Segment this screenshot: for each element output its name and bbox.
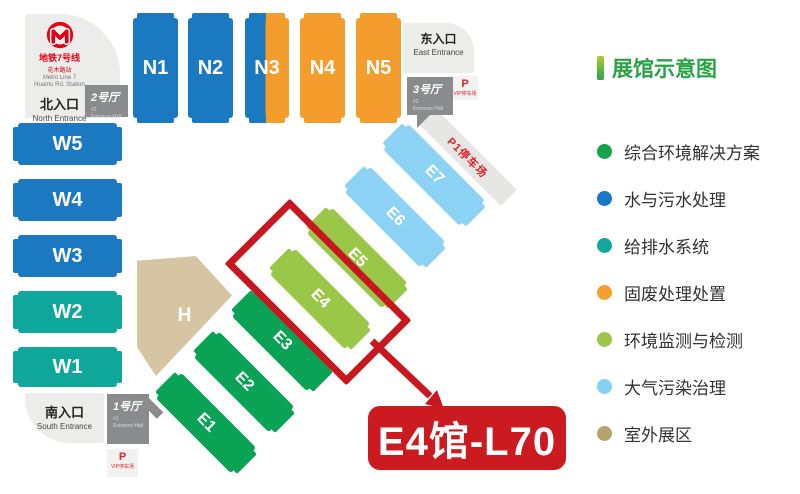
entrance-hall-2-label-en: Entrance Hall <box>91 114 128 120</box>
hall-n5-label: N5 <box>366 57 392 80</box>
entrance-hall-2-title: 2号厅 <box>91 89 128 105</box>
hall-w1: W1 <box>18 347 117 387</box>
hall-n1-label: N1 <box>143 57 169 80</box>
hall-n4-label: N4 <box>310 57 336 80</box>
legend-item-outdoor-area: 室外展区 <box>597 424 797 442</box>
hall-e2-label: E2 <box>231 369 258 396</box>
east-entrance-label: 东入口 <box>403 30 474 47</box>
entrance-hall-3-number: #3 <box>413 99 453 105</box>
e4-booth-callout-text: E4馆-L70 <box>378 409 556 467</box>
hall-w2-label: W2 <box>53 301 83 324</box>
hall-w5-label: W5 <box>53 133 83 156</box>
metro-line-name-en: Metro Line 7 <box>25 75 94 81</box>
legend-title-row: 展馆示意图 <box>597 55 797 81</box>
legend-item-water-supply-drainage: 给排水系统 <box>597 236 797 254</box>
hall-w3: W3 <box>18 235 117 277</box>
legend: 展馆示意图 综合环境解决方案 水与污水处理 给排水系统 固废处理处置 环境监测与… <box>597 55 797 471</box>
legend-items: 综合环境解决方案 水与污水处理 给排水系统 固废处理处置 环境监测与检测 大气污… <box>597 142 797 442</box>
vip-parking-top: P VIP停车场 <box>452 76 478 100</box>
vip-parking-bottom-p-icon: P <box>107 452 138 462</box>
legend-title-text: 展馆示意图 <box>612 53 717 83</box>
legend-item-label: 室外展区 <box>624 421 692 446</box>
hall-e7-label: E7 <box>421 162 448 189</box>
legend-item-label: 给排水系统 <box>624 233 709 258</box>
hall-n1: N1 <box>133 18 178 118</box>
hall-e3-label: E3 <box>269 328 296 355</box>
vip-parking-top-p-icon: P <box>452 79 478 89</box>
hall-n2: N2 <box>188 18 233 118</box>
hall-w1-label: W1 <box>53 356 83 379</box>
exhibition-map: 地铁7号线 花木路站 Metro Line 7 Huamu Rd. Statio… <box>0 0 800 494</box>
east-entrance-area: 东入口 East Entrance <box>403 23 474 73</box>
north-entrance-label-en: North Entrance <box>25 114 94 123</box>
legend-dot-teal-icon <box>597 238 612 253</box>
legend-dot-lightgreen-icon <box>597 332 612 347</box>
metro-station-name: 花木路站 <box>25 65 94 74</box>
entrance-hall-3-title: 3号厅 <box>413 81 453 97</box>
hall-w3-label: W3 <box>53 245 83 268</box>
legend-dot-lightblue-icon <box>597 379 612 394</box>
entrance-hall-1: 1号厅 #1 Entrance Hall <box>107 394 149 444</box>
legend-title-bar-icon <box>597 56 604 80</box>
hall-e1-label: E1 <box>193 410 220 437</box>
hall-n3: N3 <box>245 18 289 118</box>
entrance-hall-3-label-en: Entrance Hall <box>413 106 453 112</box>
legend-item-label: 水与污水处理 <box>624 186 726 211</box>
hall-w5: W5 <box>18 123 117 165</box>
south-entrance-label-en: South Entrance <box>25 422 104 431</box>
north-entrance-content: 地铁7号线 花木路站 Metro Line 7 Huamu Rd. Statio… <box>25 14 94 123</box>
legend-dot-blue-icon <box>597 191 612 206</box>
legend-dot-green-icon <box>597 144 612 159</box>
hall-w4-label: W4 <box>53 189 83 212</box>
legend-item-label: 综合环境解决方案 <box>624 139 760 164</box>
metro-line-name: 地铁7号线 <box>25 51 94 64</box>
hall-n5: N5 <box>356 18 401 118</box>
legend-item-water-wastewater: 水与污水处理 <box>597 189 797 207</box>
vip-parking-top-label: VIP停车场 <box>452 90 478 97</box>
south-entrance-label: 南入口 <box>25 402 104 421</box>
legend-item-env-monitoring: 环境监测与检测 <box>597 330 797 348</box>
metro-logo-icon <box>45 20 75 50</box>
legend-item-label: 固废处理处置 <box>624 280 726 305</box>
east-entrance-label-en: East Entrance <box>403 48 474 57</box>
entrance-hall-1-number: #1 <box>113 416 149 422</box>
legend-item-label: 环境监测与检测 <box>624 327 743 352</box>
hall-w4: W4 <box>18 179 117 221</box>
hall-n4: N4 <box>300 18 345 118</box>
legend-dot-tan-icon <box>597 426 612 441</box>
legend-dot-orange-icon <box>597 285 612 300</box>
legend-item-label: 大气污染治理 <box>624 374 726 399</box>
vip-parking-bottom: P VIP停车场 <box>107 449 138 477</box>
hall-h-label: H <box>178 305 192 327</box>
entrance-hall-2: 2号厅 #2 Entrance Hall <box>85 85 128 117</box>
entrance-hall-1-title: 1号厅 <box>113 398 149 414</box>
metro-station-name-en: Huamu Rd. Station <box>25 82 94 88</box>
entrance-hall-3: 3号厅 #3 Entrance Hall <box>407 77 453 115</box>
legend-item-air-pollution: 大气污染治理 <box>597 377 797 395</box>
legend-item-comprehensive-env: 综合环境解决方案 <box>597 142 797 160</box>
legend-item-solid-waste: 固废处理处置 <box>597 283 797 301</box>
entrance-hall-1-label-en: Entrance Hall <box>113 423 149 429</box>
vip-parking-bottom-label: VIP停车场 <box>107 463 138 470</box>
e4-booth-callout: E4馆-L70 <box>368 406 566 470</box>
hall-n2-label: N2 <box>198 57 224 80</box>
north-entrance-label: 北入口 <box>25 94 94 113</box>
hall-e6-label: E6 <box>382 204 409 231</box>
hall-w2: W2 <box>18 291 117 333</box>
hall-n3-label: N3 <box>254 57 280 80</box>
south-entrance-area: 南入口 South Entrance <box>25 393 104 443</box>
entrance-hall-2-number: #2 <box>91 107 128 113</box>
